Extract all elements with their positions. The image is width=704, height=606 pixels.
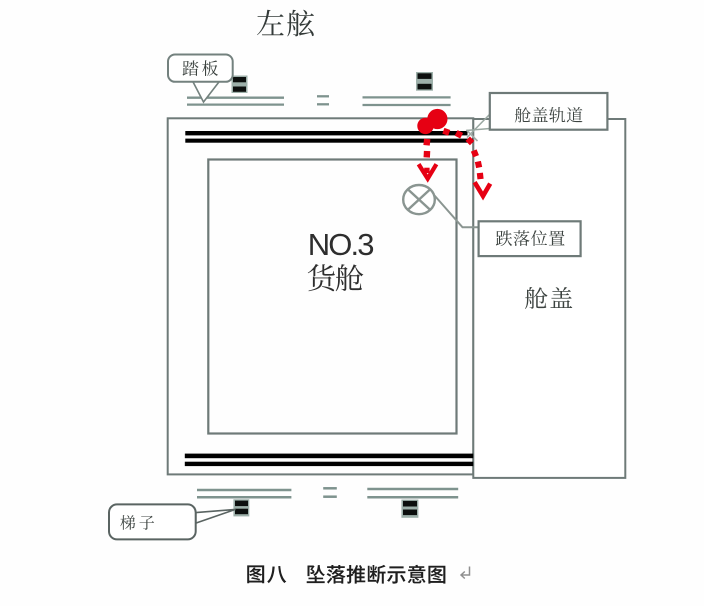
svg-text:NO.3: NO.3	[308, 227, 373, 262]
